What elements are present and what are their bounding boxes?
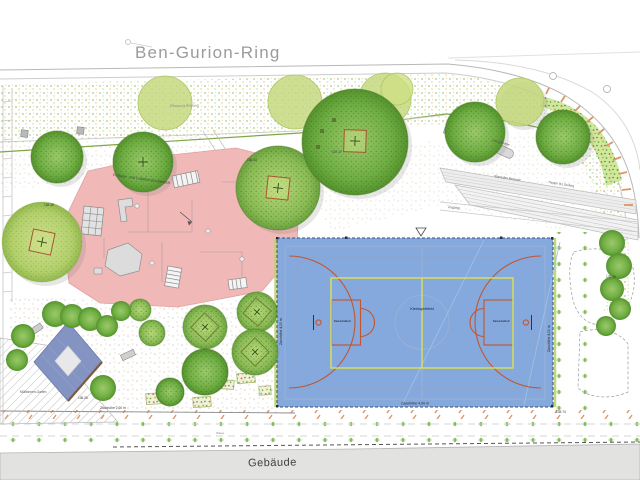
elevation: 135.74 [556, 410, 566, 414]
zugang-label: Zugang [448, 205, 460, 210]
fence-court-bottom-label: Zaunhöhe 4,00 m [401, 402, 429, 406]
survey-point-icon [550, 73, 557, 80]
wiese-label: Wiese [216, 431, 225, 435]
fence-low-label: Zaunhöhe 2,00 m [100, 406, 126, 410]
survey-point-icon [126, 40, 131, 45]
climbing-grid [81, 206, 104, 236]
fence-court-right-label: Zaunhöhe 4,00 m [547, 325, 551, 352]
elevation: 136.43 [247, 158, 257, 162]
elevation: 137.17 [332, 150, 342, 154]
street-label: Ben-Gurion-Ring [135, 43, 281, 62]
equipment-block [77, 127, 85, 135]
elevation: 136.38 [44, 203, 54, 207]
court-center-label: Kleinspielfeld [410, 306, 434, 311]
site-plan-drawing: Ben-Gurion-Ring Gebäude Parkour- und Cal… [0, 0, 640, 480]
fence-court-left-label: Zaunhöhe 4,00 m [279, 318, 283, 345]
building-label: Gebäude [248, 457, 297, 470]
ladder [165, 266, 182, 288]
sports-court [276, 228, 561, 407]
equipment-block [21, 130, 29, 138]
site-plan: Ben-Gurion-Ring Gebäude Parkour- und Cal… [0, 0, 640, 480]
survey-triangle-icon [416, 228, 426, 236]
equipment-block [94, 268, 102, 274]
survey-point-icon [604, 86, 611, 93]
muell-label: Mülltonnen-Garten [20, 390, 47, 394]
elevation: 136.26 [78, 396, 88, 400]
hoop-label-left: Basketballkorb [334, 319, 352, 323]
elevation: 135.76 [606, 275, 616, 279]
hoop-label-right: Basketballkorb [493, 319, 511, 323]
ladder [228, 277, 247, 289]
pflanzung-label: Pflanzung Bestand [170, 104, 199, 108]
